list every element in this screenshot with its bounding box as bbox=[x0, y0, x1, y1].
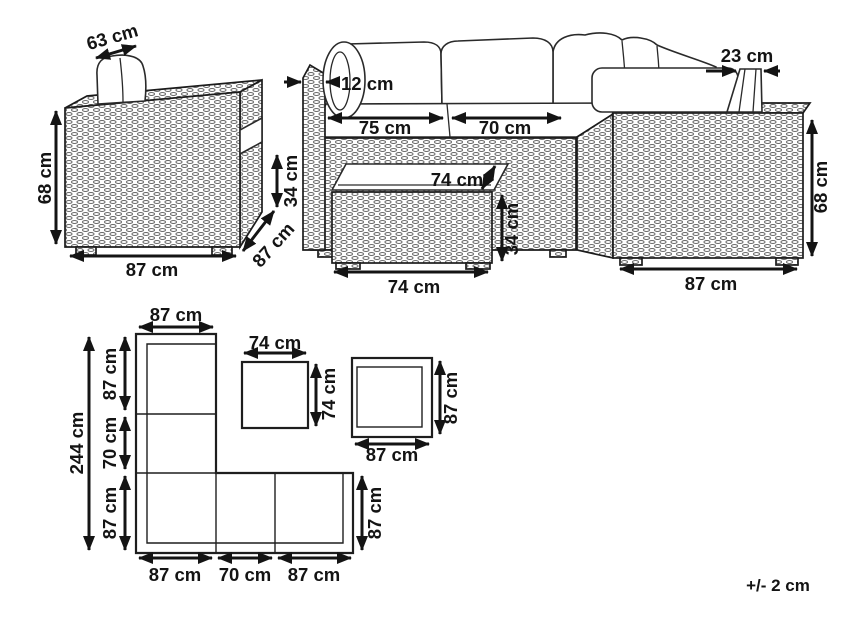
plan-bottom-segment-label: 87 cm bbox=[149, 564, 201, 585]
plan-left-segment-label: 87 cm bbox=[99, 348, 120, 400]
armchair-foot bbox=[212, 247, 232, 255]
plan-bottom-segment-label: 87 cm bbox=[288, 564, 340, 585]
sofa-armrest-width-label: 12 cm bbox=[341, 73, 393, 94]
armchair-height-label: 68 cm bbox=[34, 152, 55, 204]
plan-left-segment-label: 87 cm bbox=[99, 487, 120, 539]
armchair-foot bbox=[76, 247, 96, 255]
plan-total-length-label: 244 cm bbox=[66, 412, 87, 475]
plan-armchair-width-label: 87 cm bbox=[366, 444, 418, 465]
armchair-front-face bbox=[65, 92, 240, 247]
sofa-back-cushion-right bbox=[441, 38, 553, 106]
sofa-height-label: 68 cm bbox=[810, 161, 831, 213]
diagram-svg: 63 cm 68 cm 87 cm 87 cm 34 cm 12 cm bbox=[0, 0, 868, 619]
table-height-label: 34 cm bbox=[501, 203, 522, 255]
plan-sofa-top-width-label: 87 cm bbox=[150, 304, 202, 325]
furniture-dimension-diagram: 63 cm 68 cm 87 cm 87 cm 34 cm 12 cm bbox=[0, 0, 868, 619]
floor-plan: 87 cm 244 cm 87 cm 70 cm 87 cm 87 cm 70 … bbox=[66, 304, 461, 585]
sofa-end-width-label: 87 cm bbox=[685, 273, 737, 294]
plan-table-outline bbox=[242, 362, 308, 428]
plan-row-depth-label: 87 cm bbox=[364, 487, 385, 539]
sofa-left-armrest bbox=[303, 65, 325, 250]
tolerance-note: +/- 2 cm bbox=[746, 576, 810, 595]
armchair-width-label: 87 cm bbox=[126, 259, 178, 280]
plan-left-segment-label: 70 cm bbox=[99, 417, 120, 469]
table-width-label: 74 cm bbox=[388, 276, 440, 297]
sofa-seat-right-label: 70 cm bbox=[479, 117, 531, 138]
armchair-front-view: 63 cm 68 cm 87 cm 87 cm 34 cm bbox=[34, 19, 301, 280]
armchair-depth-label: 87 cm bbox=[248, 218, 299, 271]
table-depth-label: 74 cm bbox=[431, 169, 483, 190]
table-body bbox=[332, 192, 492, 263]
table-foot bbox=[466, 263, 490, 269]
sofa-foot bbox=[776, 258, 798, 265]
plan-bottom-segment-label: 70 cm bbox=[219, 564, 271, 585]
armchair-armrest-height-label: 34 cm bbox=[280, 155, 301, 207]
table-foot bbox=[336, 263, 360, 269]
sofa-foot bbox=[550, 250, 566, 257]
armchair-side-face bbox=[240, 80, 262, 247]
sofa-right-front-face bbox=[613, 113, 803, 258]
armchair-back-cushion-width-label: 63 cm bbox=[84, 19, 140, 54]
plan-table-depth-label: 74 cm bbox=[318, 368, 339, 420]
sofa-corner-wedge bbox=[577, 114, 613, 258]
armchair-back-pillow bbox=[97, 55, 146, 104]
plan-armchair-depth-label: 87 cm bbox=[440, 372, 461, 424]
sofa-foot bbox=[620, 258, 642, 265]
plan-table-width-label: 74 cm bbox=[249, 332, 301, 353]
sofa-seat-left-label: 75 cm bbox=[359, 117, 411, 138]
plan-armchair-outline bbox=[352, 358, 432, 437]
sofa-right-armrest-width-label: 23 cm bbox=[721, 45, 773, 66]
sofa-right-pillow bbox=[592, 68, 738, 112]
